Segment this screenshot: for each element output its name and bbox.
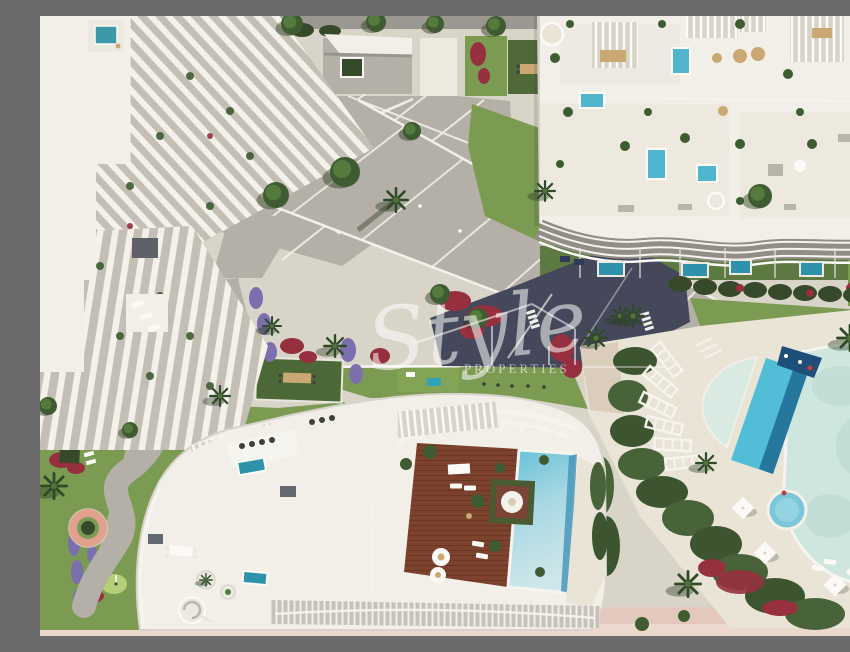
garden-table-court [255,358,342,403]
firepit-lounge [489,479,535,525]
curved-feature [541,23,563,45]
white-path [420,38,457,96]
terrace-pool [243,571,268,585]
roof-unit [132,238,158,258]
lounger-terrace [126,294,168,332]
watermark-caps-text: PROPERTIES [464,361,570,376]
square-planter [341,58,363,77]
pavilion-courtyard [323,34,548,96]
jacuzzi [768,491,806,530]
right-residential-building [534,16,850,266]
roof-pool-terrace [88,20,124,52]
aerial-render: Style PROPERTIES [40,16,850,636]
